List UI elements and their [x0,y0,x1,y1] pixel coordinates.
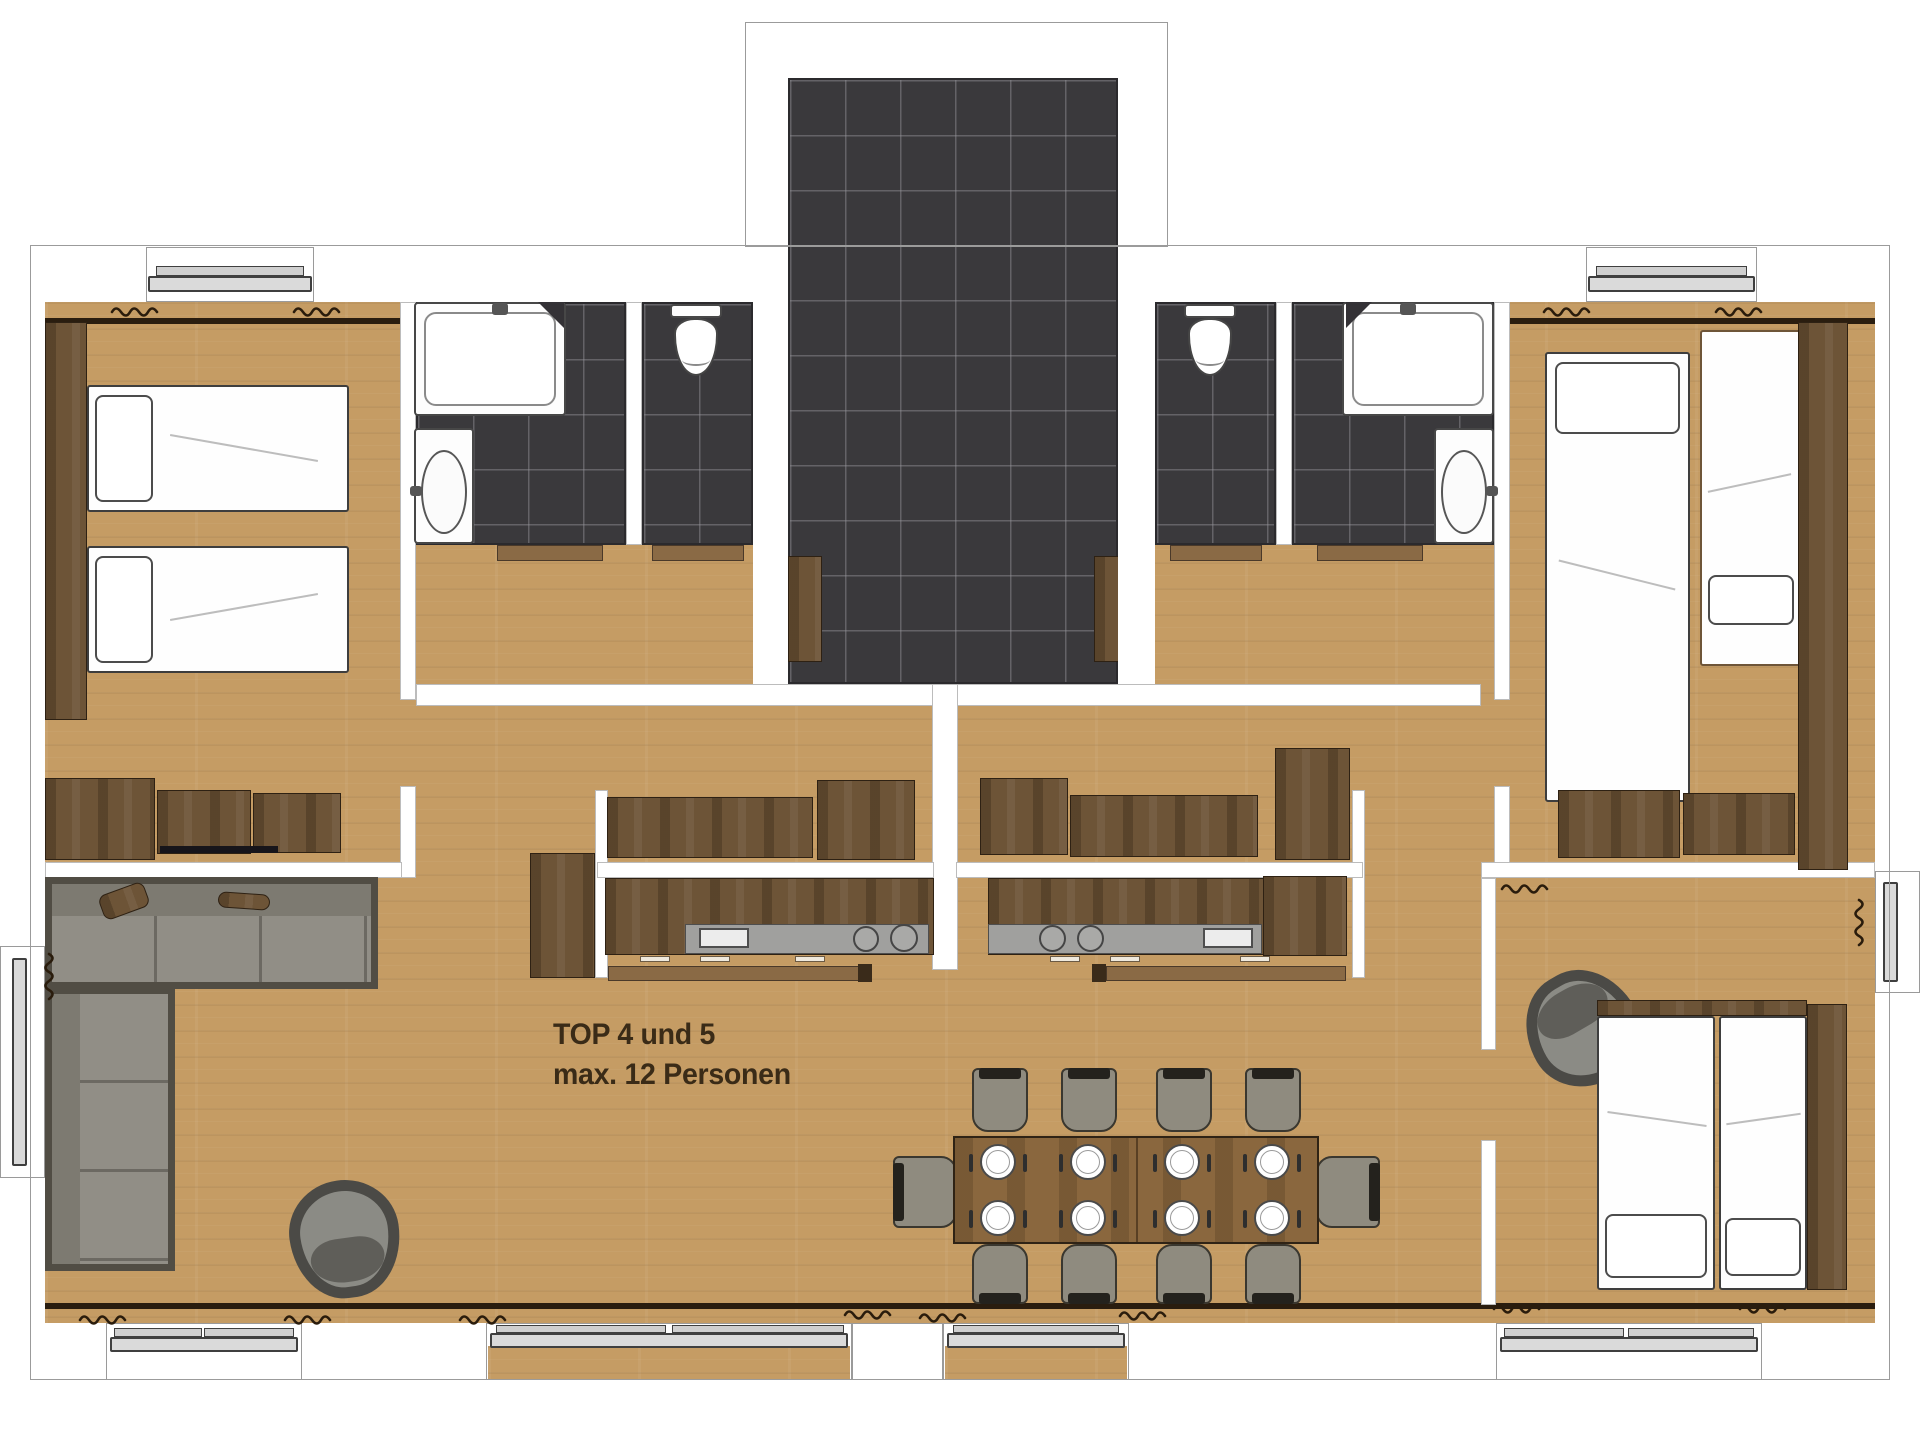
place-setting [1164,1200,1200,1236]
wardrobe [1798,322,1848,870]
dining-chair [1245,1244,1301,1304]
shower-shelf-left [538,302,564,328]
door-sill [490,1333,848,1348]
washbasin-right [1441,450,1487,534]
pillow [1605,1214,1707,1278]
door-sash [496,1325,666,1333]
radiator-squiggle [1714,303,1766,315]
entrance-hall-tiles [788,78,1118,684]
cabinet-handle [1110,956,1140,962]
dining-chair [893,1156,957,1228]
pillow [95,556,153,663]
dresser [1683,793,1795,855]
radiator-squiggle [843,1306,895,1318]
place-setting [980,1200,1016,1236]
duvet-fold [1607,1111,1706,1127]
place-setting [1254,1200,1290,1236]
place-setting [1254,1144,1290,1180]
door-threshold [1317,545,1423,561]
radiator-squiggle [1500,880,1552,892]
dining-chair [1245,1068,1301,1132]
door-sill [947,1333,1125,1348]
cabinet-handle [640,956,670,962]
door-threshold [1170,545,1262,561]
door-threshold [497,545,603,561]
dining-chair [1061,1244,1117,1304]
sofa-l-shape-vertical [45,987,175,1271]
dining-chair [1061,1068,1117,1132]
window-sill [1588,276,1755,292]
dresser [45,778,155,860]
cabinet-handle [700,956,730,962]
corridor-right [1118,302,1155,684]
tv-flatscreen [160,846,278,853]
window-sash [156,266,304,276]
shower-shelf-right [1346,302,1372,328]
cooktop-burner [1039,925,1066,952]
place-setting [1070,1144,1106,1180]
radiator-squiggle [918,1309,970,1321]
kitchen-right-sink [1203,928,1253,948]
door-opening-bottom-center [852,1323,943,1380]
cooktop-burner [1077,925,1104,952]
wall-hall-south-left [416,684,934,706]
wall-hall-south-right [956,684,1481,706]
window-sash [114,1328,202,1337]
radiator-squiggle [110,303,162,315]
pillow [1725,1218,1801,1276]
cabinet-handle [1050,956,1080,962]
duvet-fold [1708,473,1792,493]
bathtub-left-faucet [492,303,508,315]
sofa-l-shape-horizontal [45,877,378,989]
washbasin-left-faucet [410,486,422,496]
dining-chair [1156,1244,1212,1304]
window-sill [1883,882,1898,982]
table-seam [1136,1138,1138,1242]
cooktop-burner [890,924,918,952]
sideboard [980,778,1068,855]
place-setting [980,1144,1016,1180]
dining-chair [972,1068,1028,1132]
door-sash [672,1325,844,1333]
cabinet-handle [1240,956,1270,962]
wall-kitchen-right-side [1352,790,1365,978]
terrace-deck [488,1346,850,1379]
dresser [1558,790,1680,858]
radiator-squiggle [292,303,344,315]
wall-line-top-left [45,318,402,324]
dining-chair [1316,1156,1380,1228]
wall-bedroom-right-upper [1494,302,1510,700]
radiator-squiggle [1856,898,1868,950]
bar-ledge-left [608,966,871,981]
radiator-squiggle [78,1311,130,1323]
radiator-squiggle [46,952,58,1004]
window-sill [148,276,312,292]
bathtub-left-basin [424,312,556,406]
floor-plan: TOP 4 und 5 max. 12 Personen [0,0,1920,1440]
bar-ledge-right [1106,966,1346,981]
radiator-squiggle [458,1311,510,1323]
wall-right [1875,245,1890,1380]
kitchen-island-left [530,853,595,978]
sideboard [1070,795,1258,857]
wardrobe [1807,1004,1847,1290]
dining-chair [972,1244,1028,1304]
radiator-squiggle [1118,1307,1170,1319]
pillow [1555,362,1680,434]
kitchen-right-return-cabinet [1263,876,1347,956]
bar-ledge-cap [858,964,872,982]
window-sill [1500,1337,1758,1352]
radiator-squiggle [283,1311,335,1323]
radiator-squiggle [1492,1300,1544,1312]
pillow [95,395,153,502]
window-sill [12,958,27,1166]
kitchen-left-sink [699,928,749,948]
washbasin-right-faucet [1486,486,1498,496]
corridor-left [753,302,788,684]
headboard-panel-left [45,322,87,720]
door-threshold [652,545,744,561]
window-sash [1596,266,1747,276]
bathtub-right-faucet [1400,303,1416,315]
duvet-fold [170,593,318,621]
radiator-squiggle [1542,303,1594,315]
duvet-fold [1559,560,1676,591]
door-sash [953,1325,1119,1333]
dresser [157,790,251,854]
wall-bedroom-br-left-upper [1481,878,1496,1050]
wall-center [932,684,958,970]
bar-ledge-cap [1092,964,1106,982]
dresser [253,793,341,853]
toilet-right-cistern [1184,304,1236,318]
pillow [1708,575,1794,625]
duvet-fold [170,434,318,462]
dining-chair [1156,1068,1212,1132]
plan-label-line2: max. 12 Personen [553,1058,791,1092]
wall-left [30,245,45,1380]
terrace-deck [945,1346,1127,1379]
sofa-backrest [52,994,80,1264]
wall-bedroom-br-left-lower [1481,1140,1496,1305]
wall-kitchen-left-divider [597,862,934,878]
place-setting [1164,1144,1200,1180]
tall-cabinet [1275,748,1350,860]
window-sash [1504,1328,1624,1337]
wall-bath-wc-right [1276,302,1292,545]
washbasin-left [421,450,467,534]
plan-label-line1: TOP 4 und 5 [553,1018,715,1052]
window-sash [1628,1328,1754,1337]
sideboard [607,797,813,858]
place-setting [1070,1200,1106,1236]
sofa-cushion-seams [52,916,371,982]
hall-cabinet-left [788,556,822,662]
duvet-fold [1726,1113,1801,1125]
radiator-squiggle [1738,1300,1790,1312]
headboard-bar [1597,1000,1807,1016]
wall-bath-wc-left [626,302,642,545]
toilet-left-cistern [670,304,722,318]
window-sill [110,1337,298,1352]
cabinet-handle [795,956,825,962]
sideboard [817,780,915,860]
wall-bedroom-left-bottom [45,862,402,878]
wall-bedroom-left-lower [400,786,416,878]
sofa-cushion-seams [80,994,168,1264]
cooktop-burner [853,926,879,952]
window-sash [204,1328,294,1337]
